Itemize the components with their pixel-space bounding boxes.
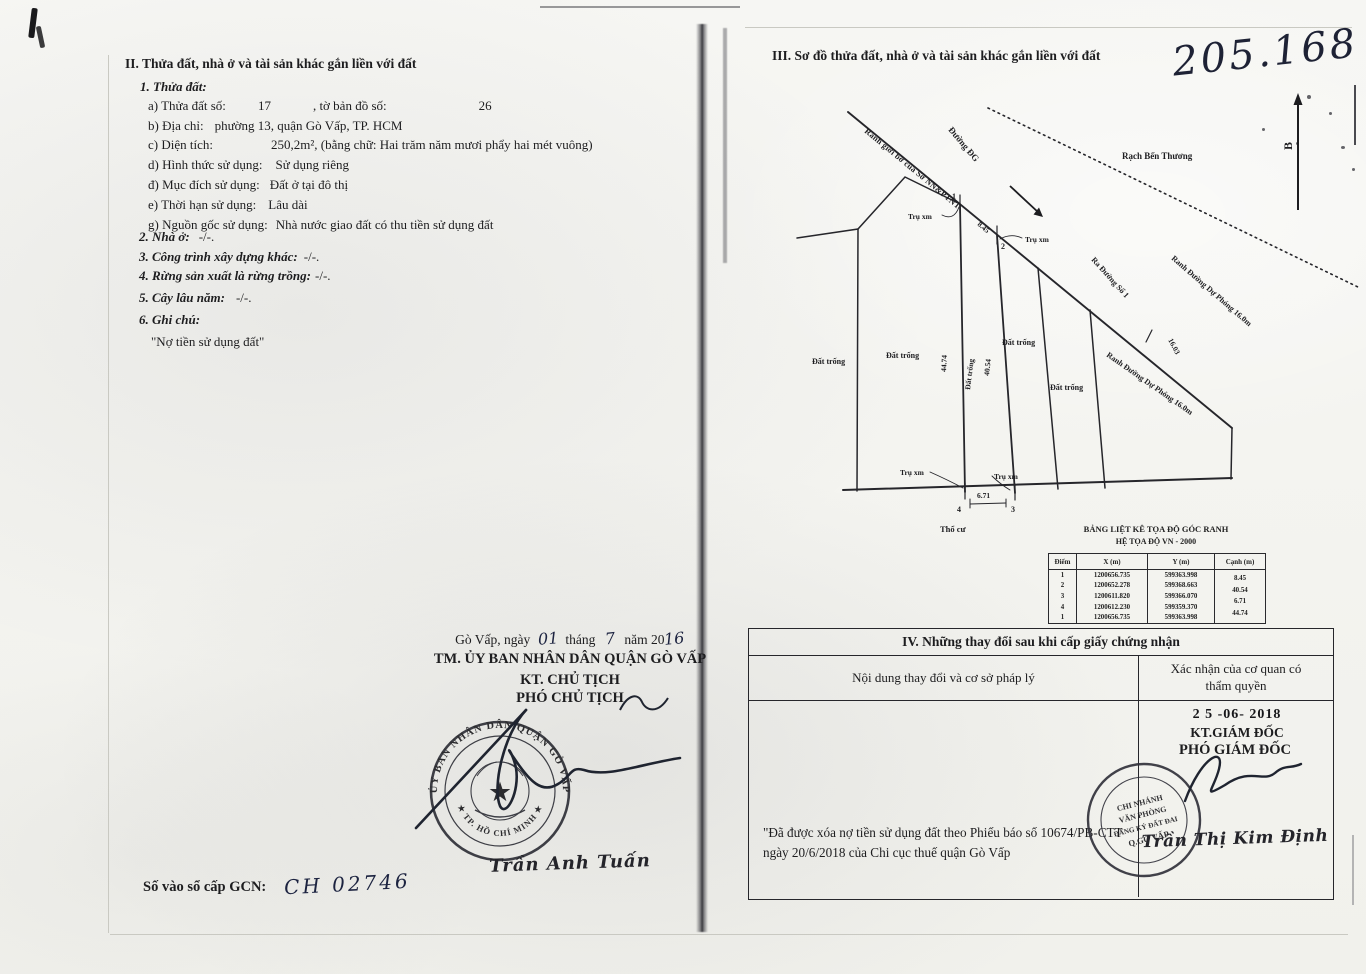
authority-line: TM. ỦY BAN NHÂN DÂN QUẬN GÒ VẤP xyxy=(360,651,780,668)
fold-line xyxy=(696,24,708,932)
item-perennial: 5. Cây lâu năm:-/-. xyxy=(139,290,252,306)
item-value: -/-. xyxy=(304,249,320,264)
field-value: Đất ở tại đô thị xyxy=(270,177,348,192)
page-border-top xyxy=(745,27,1352,28)
field-label: c) Diện tích: xyxy=(148,137,213,152)
field-value: phường 13, quận Gò Vấp, TP. HCM xyxy=(215,118,403,133)
section4-col-left-header: Nội dung thay đổi và cơ sở pháp lý xyxy=(749,656,1139,700)
field-label: d) Hình thức sử dụng: xyxy=(148,157,262,172)
north-label: B xyxy=(1281,142,1295,150)
field-value: Lâu dài xyxy=(268,197,307,212)
item-label: 3. Công trình xây dựng khác: xyxy=(139,249,298,264)
item-label: 6. Ghi chú: xyxy=(139,312,200,327)
fold-line-secondary xyxy=(723,28,727,263)
cadastral-sketch: B Đường ĐG Rạch Bến Thương Ranh giới bờ … xyxy=(780,88,1365,628)
coord-table: Điểm 1 2 3 4 1 X (m) 1200656.735 1200652… xyxy=(1048,553,1266,624)
post-label: Trụ xm xyxy=(1025,235,1050,244)
section2-sub1: 1. Thửa đất: xyxy=(140,79,207,95)
parcel-boundaries xyxy=(797,108,1360,508)
page-border-bottom xyxy=(110,934,1348,935)
coord-cell: 599363.998 xyxy=(1148,612,1214,623)
coord-cell: 1200652.278 xyxy=(1077,581,1147,592)
corner-point: 3 xyxy=(1011,505,1015,514)
coord-cell: 599363.998 xyxy=(1148,570,1214,581)
boundary-label-nnptnt: Ranh giới bờ của Sở NN&PTNT xyxy=(863,127,963,211)
page-border-left xyxy=(108,55,109,933)
field-address: b) Địa chỉ:phường 13, quận Gò Vấp, TP. H… xyxy=(148,118,402,134)
edge-dim-right: 40.54 xyxy=(982,358,993,376)
field-value: 250,2m², (bằng chữ: Hai trăm năm mươi ph… xyxy=(271,137,593,152)
registry-line: Số vào sổ cấp GCN: CH 02746 xyxy=(143,872,411,896)
coord-cell: 599366.070 xyxy=(1148,591,1214,602)
section2-heading: II. Thửa đất, nhà ở và tài sản khác gắn … xyxy=(125,56,416,72)
canal-label: Rạch Bến Thương xyxy=(1122,151,1193,161)
corner-point: 4 xyxy=(957,505,961,514)
to-street-label: Ra Đường Số 1 xyxy=(1090,255,1131,299)
post-label: Trụ xm xyxy=(994,472,1019,481)
coord-cell: 1200611.820 xyxy=(1077,591,1147,602)
handwritten-year: 16 xyxy=(664,628,686,649)
field-label: a) Thửa đất số: xyxy=(148,98,226,113)
field-value: Nhà nước giao đất có thu tiền sử dụng đấ… xyxy=(276,217,494,232)
month-label: tháng xyxy=(565,632,595,647)
field-value: 26 xyxy=(479,98,492,113)
field-label: , tờ bản đồ số: xyxy=(313,98,387,113)
deputy-director-signature xyxy=(1177,739,1307,814)
road-direction-arrow xyxy=(1010,186,1043,217)
north-arrow: B xyxy=(1281,93,1303,210)
item-forest: 4. Rừng sản xuất là rừng trồng:-/-. xyxy=(139,268,331,284)
field-use-form: d) Hình thức sử dụng:Sử dụng riêng xyxy=(148,157,349,173)
year-label: năm 20 xyxy=(624,632,664,647)
vacant-land-label: Đất trống xyxy=(1002,338,1035,347)
section4-heading: IV. Những thay đổi sau khi cấp giấy chứn… xyxy=(749,629,1333,656)
item-label: 5. Cây lâu năm: xyxy=(139,290,225,305)
dim-16-label: 16.03 xyxy=(1166,337,1182,356)
chairman-signature xyxy=(408,700,688,850)
corner-point: 2 xyxy=(1001,242,1005,251)
section4-body: "Đã được xóa nợ tiền sử dụng đất theo Ph… xyxy=(749,701,1333,897)
residential-label: Thổ cư xyxy=(940,524,967,534)
registry-value-handwritten: CH 02746 xyxy=(284,869,412,900)
note-debt: "Nợ tiền sử dụng đất" xyxy=(151,334,264,350)
coord-cell: 2 xyxy=(1049,581,1076,592)
date-line: Gò Vấp, ngày 01 tháng 7 năm 2016 xyxy=(360,629,780,648)
post-label: Trụ xm xyxy=(908,212,933,221)
coord-cell: 4 xyxy=(1049,602,1076,613)
signing-block: Gò Vấp, ngày 01 tháng 7 năm 2016 TM. ỦY … xyxy=(360,629,780,707)
field-label: đ) Mục đích sử dụng: xyxy=(148,177,260,192)
item-label: 4. Rừng sản xuất là rừng trồng: xyxy=(139,268,311,283)
coord-col-x: X (m) 1200656.735 1200652.278 1200611.82… xyxy=(1077,554,1148,623)
coord-table-title-2: HỆ TỌA ĐỘ VN - 2000 xyxy=(1048,537,1264,546)
vacant-land-label: Đất trống xyxy=(886,351,919,360)
section4-table: IV. Những thay đổi sau khi cấp giấy chứn… xyxy=(748,628,1334,900)
section4-col-right-header: Xác nhận của cơ quan có thẩm quyền xyxy=(1139,656,1333,700)
edge-length: 44.74 xyxy=(1232,608,1248,620)
item-construction: 3. Công trình xây dựng khác:-/-. xyxy=(139,249,319,265)
registry-label: Số vào sổ cấp GCN: xyxy=(143,879,266,895)
corner-point: 1 xyxy=(952,192,956,201)
coord-cell: 1200612.230 xyxy=(1077,602,1147,613)
field-label: e) Thời hạn sử dụng: xyxy=(148,197,256,212)
coord-cell: 3 xyxy=(1049,591,1076,602)
item-value: -/-. xyxy=(236,290,252,305)
section3-heading: III. Sơ đồ thửa đất, nhà ở và tài sản kh… xyxy=(772,48,1100,64)
item-value: -/-. xyxy=(199,229,215,244)
field-parcel-number: a) Thửa đất số:17, tờ bản đồ số:26 xyxy=(148,98,492,114)
handwritten-month: 7 xyxy=(604,629,616,649)
date-prefix: Gò Vấp, ngày xyxy=(455,632,530,647)
road-label: Đường ĐG xyxy=(946,125,981,164)
coord-col-edge: Cạnh (m) 8.45 40.54 6.71 44.74 xyxy=(1215,554,1265,623)
coord-header: X (m) xyxy=(1077,554,1147,570)
coord-table-title-1: BẢNG LIỆT KÊ TỌA ĐỘ GÓC RANH xyxy=(1048,524,1264,534)
item-house: 2. Nhà ở:-/-. xyxy=(139,229,214,245)
vacant-land-label: Đất trống xyxy=(812,357,845,366)
page-edge-mark xyxy=(1352,835,1354,905)
coord-col-point: Điểm 1 2 3 4 1 xyxy=(1049,554,1077,623)
corner-mark xyxy=(36,26,45,49)
vacant-land-label: Đất trống xyxy=(963,358,976,390)
edge-dim-left: 44.74 xyxy=(939,355,949,373)
coord-cell: 1 xyxy=(1049,570,1076,581)
coord-cell: 599368.663 xyxy=(1148,581,1214,592)
item-notes: 6. Ghi chú: xyxy=(139,312,200,328)
coord-header: Điểm xyxy=(1049,554,1076,570)
field-value: Sử dụng riêng xyxy=(275,157,349,172)
coord-header: Y (m) xyxy=(1148,554,1214,570)
item-value: -/-. xyxy=(315,268,331,283)
field-use-term: e) Thời hạn sử dụng:Lâu dài xyxy=(148,197,308,213)
signer-title-1: KT. CHỦ TỊCH xyxy=(360,672,780,689)
coord-cell: 1200656.735 xyxy=(1077,570,1147,581)
confirmation-date-stamp: 2 5 -06- 2018 xyxy=(1141,707,1333,723)
item-label: 2. Nhà ở: xyxy=(139,229,190,244)
edge-length-list: 8.45 40.54 6.71 44.74 xyxy=(1215,570,1265,623)
coord-cell: 1 xyxy=(1049,612,1076,623)
edge-dim-bottom: 6.71 xyxy=(977,491,990,500)
edge-length: 8.45 xyxy=(1234,573,1246,585)
coord-col-y: Y (m) 599363.998 599368.663 599366.070 5… xyxy=(1148,554,1215,623)
edge-length: 40.54 xyxy=(1232,585,1248,597)
page-border-topleft xyxy=(540,6,740,8)
coord-header: Cạnh (m) xyxy=(1215,554,1265,570)
handwritten-day: 01 xyxy=(537,628,559,648)
field-use-purpose: đ) Mục đích sử dụng:Đất ở tại đô thị xyxy=(148,177,348,193)
field-value: 17 xyxy=(258,98,271,113)
planned-road-label-dotted: Ranh Đường Dự Phóng 16.0m xyxy=(1170,254,1254,329)
post-label: Trụ xm xyxy=(900,468,925,477)
field-label: b) Địa chỉ: xyxy=(148,118,204,133)
coord-cell: 1200656.735 xyxy=(1077,612,1147,623)
vacant-land-label: Đất trống xyxy=(1050,383,1083,392)
coord-cell: 599359.370 xyxy=(1148,602,1214,613)
handwritten-page-number: 205.168 xyxy=(1170,20,1360,85)
scanned-certificate-page: II. Thửa đất, nhà ở và tài sản khác gắn … xyxy=(0,0,1366,974)
edge-dim-top: 8.45 xyxy=(976,220,992,235)
field-area: c) Diện tích:250,2m², (bằng chữ: Hai tră… xyxy=(148,137,593,153)
edge-length: 6.71 xyxy=(1234,596,1246,608)
